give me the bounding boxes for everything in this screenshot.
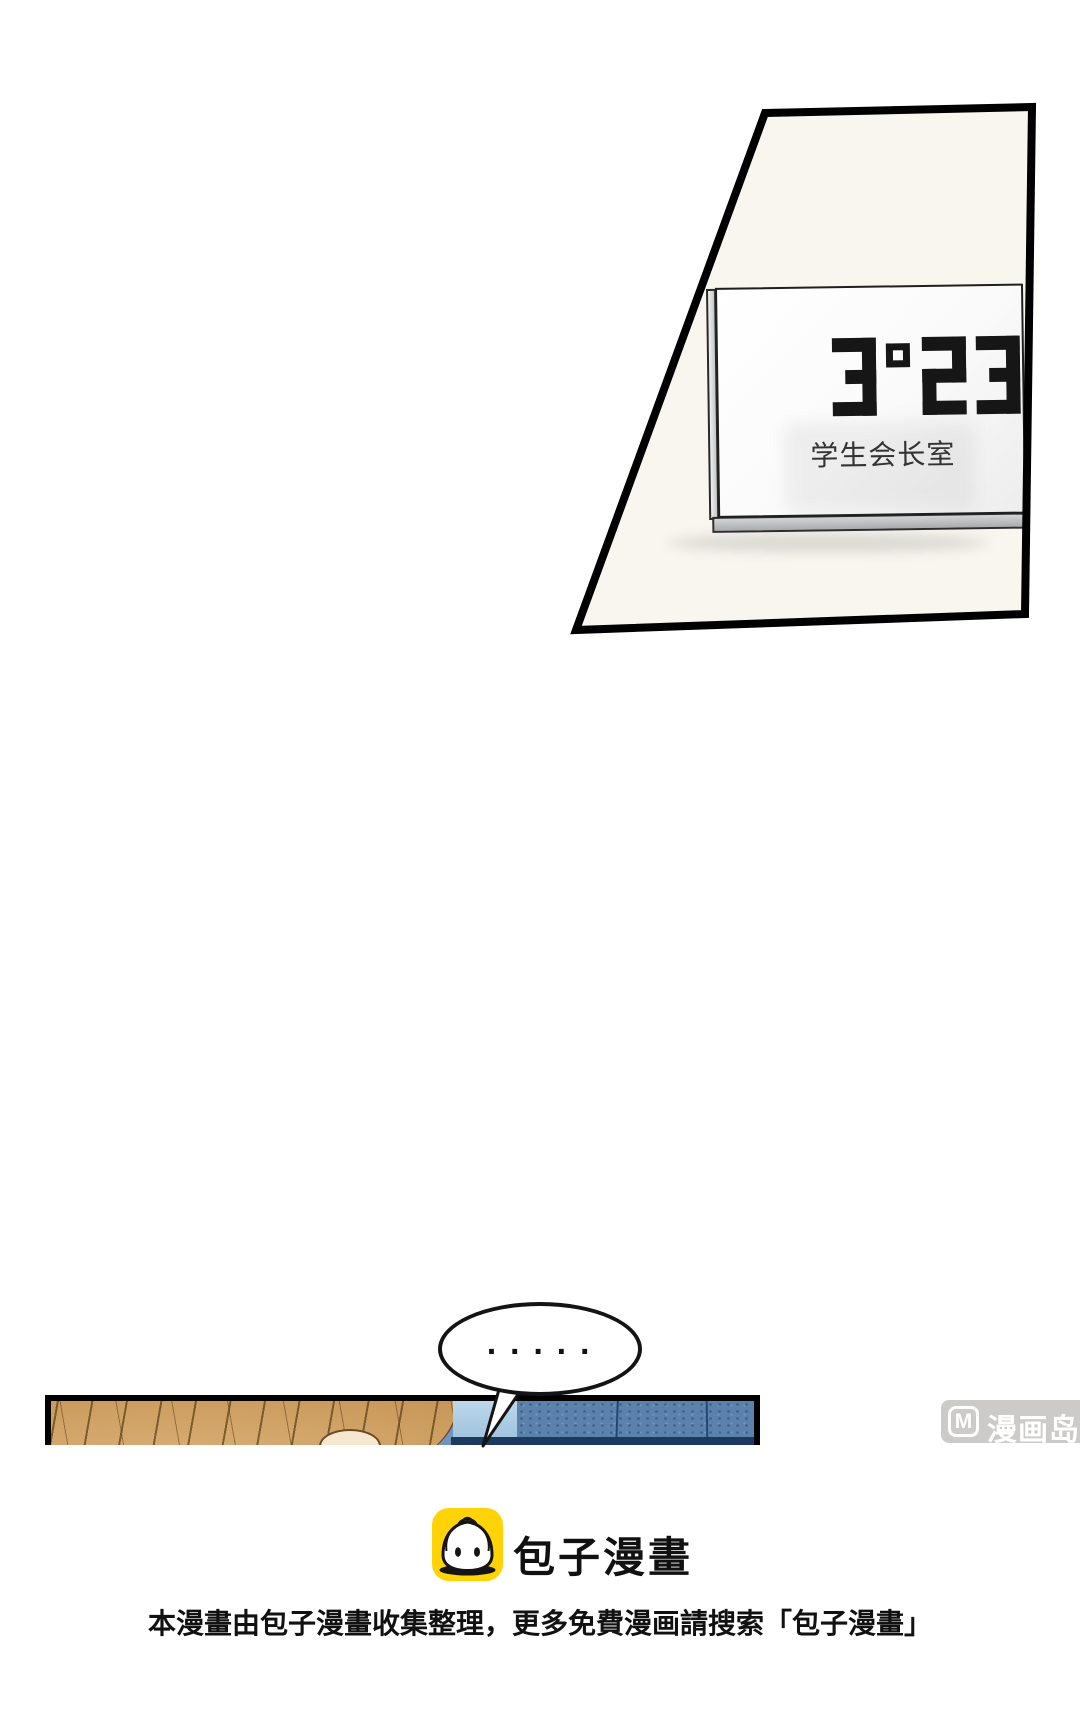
character-hair bbox=[45, 1395, 461, 1445]
baozi-logo-text: 包子漫畫 bbox=[513, 1524, 693, 1585]
manhuadao-watermark-badge: M 漫画岛 bbox=[941, 1400, 1080, 1443]
comic-strip-panel bbox=[45, 1395, 760, 1445]
door-wall-panel bbox=[0, 0, 1080, 1722]
door-sign: 学生会长室 bbox=[706, 284, 1026, 536]
door-wall-border bbox=[0, 0, 1080, 1722]
speech-bubble: ····· bbox=[438, 1302, 642, 1396]
m-logo-icon: M bbox=[948, 1406, 979, 1437]
footer-note: 本漫畫由包子漫畫收集整理，更多免費漫画請搜索「包子漫畫」 bbox=[0, 1602, 1080, 1642]
hair-strokes bbox=[45, 1395, 459, 1445]
baozi-bun-icon bbox=[432, 1508, 503, 1581]
baozi-logo bbox=[432, 1508, 503, 1581]
sign-shadow bbox=[668, 534, 988, 552]
speech-dots: ····· bbox=[477, 1327, 604, 1372]
room-number-digits bbox=[832, 334, 1021, 419]
watermark-site-name: 漫画岛 bbox=[987, 1405, 1080, 1449]
sign-face: 学生会长室 bbox=[715, 284, 1026, 518]
room-label: 学生会长室 bbox=[810, 433, 956, 475]
